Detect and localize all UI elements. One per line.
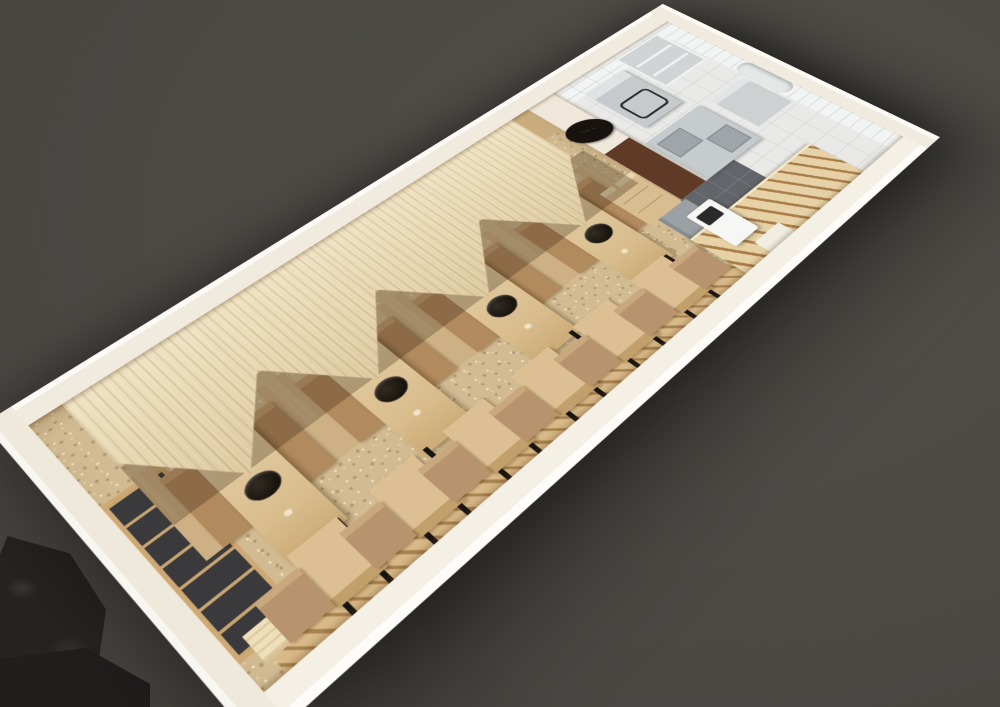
render-canvas: ···· ·· [0, 0, 1000, 707]
table-detail [282, 508, 293, 518]
exterior-rock-base [0, 648, 150, 707]
table-detail [620, 248, 629, 254]
table-detail [523, 323, 533, 330]
brand-logo-mark: ···· ·· [580, 127, 598, 135]
table-detail [412, 408, 423, 416]
restaurant-building: ···· ·· [0, 4, 940, 707]
